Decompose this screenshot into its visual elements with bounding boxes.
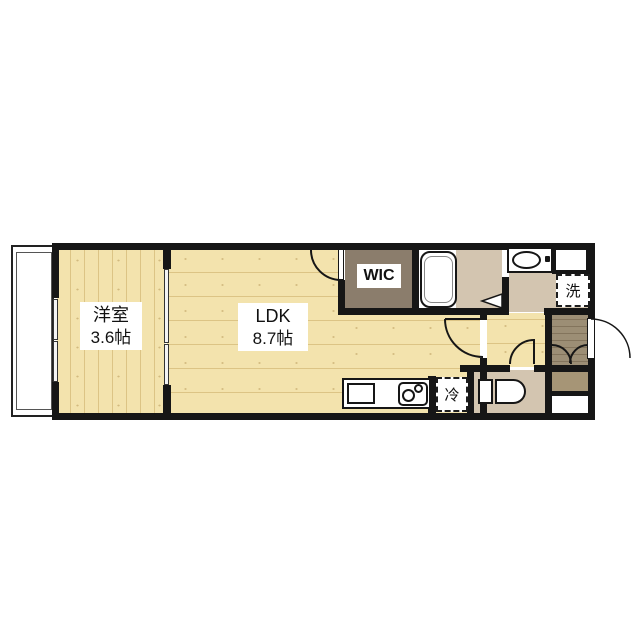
room-size: 8.7帖 xyxy=(253,328,294,349)
balcony-inner-line xyxy=(16,252,52,410)
void-space xyxy=(552,396,588,413)
wall xyxy=(545,311,552,367)
toilet-bowl xyxy=(495,379,526,404)
room-name: WIC xyxy=(363,266,394,286)
wall xyxy=(480,313,487,320)
front-door-leaf xyxy=(587,318,595,359)
shoe-cabinet xyxy=(551,370,588,391)
washer-label: 洗 xyxy=(565,280,580,301)
washbasin-bowl xyxy=(512,251,541,269)
hallway-floor xyxy=(487,313,545,367)
washbasin-tap xyxy=(545,256,550,262)
ldk-label: LDK 8.7帖 xyxy=(238,303,308,351)
wall xyxy=(412,243,419,315)
toilet-tank xyxy=(478,379,493,404)
wall xyxy=(534,365,595,372)
floorplan-canvas: 洗 冷 洋室 3.6帖 LDK 8.7帖 WIC xyxy=(0,0,640,640)
wic-door-leaf xyxy=(338,249,344,280)
storage-box xyxy=(552,246,590,274)
wic-label: WIC xyxy=(357,264,401,288)
wall xyxy=(467,365,474,420)
wall xyxy=(163,385,171,413)
front-door-arc xyxy=(591,319,630,358)
kitchen-sink xyxy=(347,383,375,404)
sliding-door-panel xyxy=(164,269,169,343)
room-size: 3.6帖 xyxy=(91,327,132,348)
wall xyxy=(52,382,59,420)
wall xyxy=(545,391,595,396)
stove-burner-large xyxy=(402,389,415,402)
sliding-door-panel xyxy=(164,344,169,385)
wall xyxy=(163,243,171,269)
wall xyxy=(52,243,59,298)
fridge-space: 冷 xyxy=(436,377,468,412)
bathroom-floor xyxy=(456,250,504,310)
western-room-label: 洋室 3.6帖 xyxy=(80,302,142,350)
balcony-window-panel xyxy=(53,341,58,382)
bathtub-inner-line xyxy=(424,256,453,303)
room-name: LDK xyxy=(255,305,290,328)
balcony-window-panel xyxy=(53,299,58,340)
fridge-label: 冷 xyxy=(444,384,459,405)
stove-burner-small xyxy=(414,384,423,393)
room-name: 洋室 xyxy=(93,304,129,327)
wall xyxy=(55,413,595,420)
entrance-tile xyxy=(551,313,589,367)
washer-space: 洗 xyxy=(556,274,590,307)
